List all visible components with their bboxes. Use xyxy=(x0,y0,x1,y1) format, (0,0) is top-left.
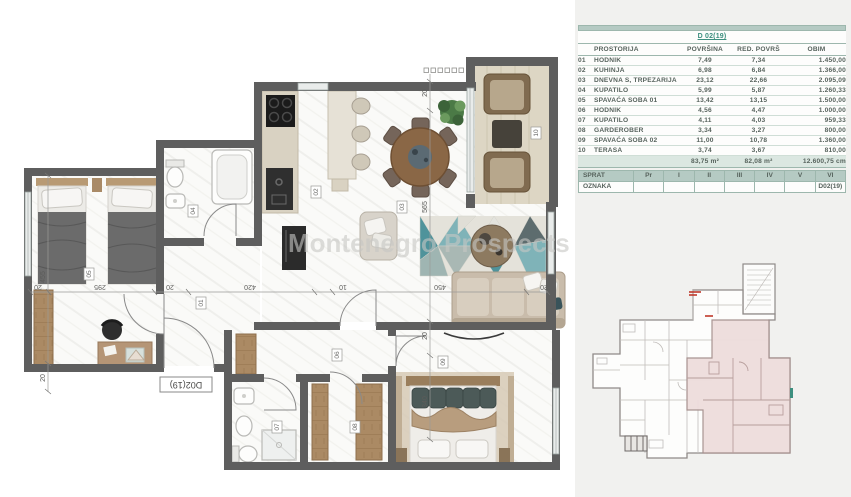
sprat-header-row: SPRAT Pr I II III IV V VI xyxy=(579,171,846,182)
level-pr: Pr xyxy=(634,171,664,182)
nightstand xyxy=(396,448,407,462)
table-row: 02KUHINJA6,986,841.366,00 xyxy=(578,66,846,76)
room-name: SPAVAĆA SOBA 02 xyxy=(594,136,680,146)
svg-text:20: 20 xyxy=(34,283,42,290)
oznaka-cell xyxy=(724,182,754,193)
level-1: I xyxy=(664,171,694,182)
level-2: II xyxy=(694,171,724,182)
room-red: 6,84 xyxy=(730,66,787,76)
sprat-label: SPRAT xyxy=(579,171,634,182)
room-red: 7,34 xyxy=(730,56,787,66)
bar-stool xyxy=(352,154,370,170)
svg-text:455: 455 xyxy=(40,271,47,283)
room-num: 01 xyxy=(578,56,594,66)
armchair xyxy=(360,212,397,260)
room-area: 4,11 xyxy=(680,116,730,126)
room-area: 3,74 xyxy=(680,146,730,156)
room-name: KUPATILO xyxy=(594,116,680,126)
oznaka-cell xyxy=(694,182,724,193)
single-bed-left xyxy=(36,178,88,284)
svg-text:20: 20 xyxy=(540,283,548,290)
room-area: 5,99 xyxy=(680,86,730,96)
level-4: IV xyxy=(755,171,785,182)
room-name: SPAVAĆA SOBA 01 xyxy=(594,96,680,106)
room-obim: 810,00 xyxy=(787,146,846,156)
room-red: 5,87 xyxy=(730,86,787,96)
room-name: HODNIK xyxy=(594,56,680,66)
bar-stool xyxy=(352,98,370,114)
room-obim: 2.095,09 xyxy=(787,76,846,86)
svg-text:450: 450 xyxy=(434,283,446,290)
room-area: 11,00 xyxy=(680,136,730,146)
single-bed-right xyxy=(106,178,158,284)
svg-text:04: 04 xyxy=(190,207,197,215)
col-povrsina: POVRŠINA xyxy=(680,44,730,56)
svg-text:03: 03 xyxy=(399,203,406,211)
coffee-table xyxy=(471,225,513,267)
oznaka-cell xyxy=(634,182,664,193)
wardrobe xyxy=(34,290,53,368)
svg-text:20: 20 xyxy=(166,283,174,290)
level-6: VI xyxy=(815,171,845,182)
table-row: 03DNEVNA S, TRPEZARIJA23,1222,662.095,09 xyxy=(578,76,846,86)
plant xyxy=(438,100,466,126)
svg-text:565: 565 xyxy=(422,201,429,213)
room-obim: 1.500,00 xyxy=(787,96,846,106)
room-red: 4,03 xyxy=(730,116,787,126)
svg-text:08: 08 xyxy=(352,423,359,431)
floorplan-svg: 20 295 20 420 10 450 20 455 20 20 565 20… xyxy=(0,0,575,497)
svg-text:02: 02 xyxy=(313,188,320,196)
svg-text:05: 05 xyxy=(86,270,93,278)
oznaka-cell xyxy=(785,182,815,193)
oznaka-unit: D02(19) xyxy=(815,182,845,193)
room-num: 08 xyxy=(578,126,594,136)
col-red-povrs: RED. POVRŠ xyxy=(730,44,787,56)
svg-text:09: 09 xyxy=(440,358,447,366)
room-name: HODNIK xyxy=(594,106,680,116)
table-row: 06HODNIK4,564,471.000,00 xyxy=(578,106,846,116)
svg-text:01: 01 xyxy=(198,299,205,307)
svg-text:10: 10 xyxy=(339,283,347,290)
room-red: 13,15 xyxy=(730,96,787,106)
terrace-table xyxy=(492,120,522,148)
col-prostorija: PROSTORIJA xyxy=(594,44,680,56)
room-name: GARDEROBER xyxy=(594,126,680,136)
room-area: 7,49 xyxy=(680,56,730,66)
level-5: V xyxy=(785,171,815,182)
table-row: 09SPAVAĆA SOBA 0211,0010,781.360,00 xyxy=(578,136,846,146)
keyplan-svg xyxy=(583,250,813,470)
room-area: 4,56 xyxy=(680,106,730,116)
table-row: 01HODNIK7,497,341.450,00 xyxy=(578,56,846,66)
rug xyxy=(420,216,546,276)
room-num: 03 xyxy=(578,76,594,86)
room-red: 4,47 xyxy=(730,106,787,116)
room-red: 3,27 xyxy=(730,126,787,136)
table-row: 07KUPATILO4,114,03959,33 xyxy=(578,116,846,126)
total-area: 83,75 m² xyxy=(680,156,730,168)
table-row: 10TERASA3,743,67810,00 xyxy=(578,146,846,156)
oznaka-cell xyxy=(755,182,785,193)
room-obim: 1.360,00 xyxy=(787,136,846,146)
svg-text:20: 20 xyxy=(422,89,429,97)
entrance-label: D02(19) xyxy=(160,377,212,392)
table-row: 04KUPATILO5,995,871.260,33 xyxy=(578,86,846,96)
room-name: DNEVNA S, TRPEZARIJA xyxy=(594,76,680,86)
svg-text:340: 340 xyxy=(422,396,429,408)
room-red: 3,67 xyxy=(730,146,787,156)
room-num: 07 xyxy=(578,116,594,126)
teal-marker xyxy=(790,388,793,398)
svg-text:D02(19): D02(19) xyxy=(170,380,203,390)
room-area: 13,42 xyxy=(680,96,730,106)
nightstand xyxy=(92,178,102,192)
totals-row: 83,75 m² 82,08 m² 12.600,75 cm xyxy=(578,156,846,168)
room-area: 23,12 xyxy=(680,76,730,86)
table-row: 05SPAVAĆA SOBA 0113,4213,151.500,00 xyxy=(578,96,846,106)
room-num: 05 xyxy=(578,96,594,106)
total-obim: 12.600,75 cm xyxy=(787,156,846,168)
room-num: 06 xyxy=(578,106,594,116)
sheet-canvas: 20 295 20 420 10 450 20 455 20 20 565 20… xyxy=(0,0,851,497)
room-name: KUPATILO xyxy=(594,86,680,96)
oznaka-cell xyxy=(664,182,694,193)
nightstand xyxy=(499,448,510,462)
room-area: 3,34 xyxy=(680,126,730,136)
room-num: 04 xyxy=(578,86,594,96)
svg-text:10: 10 xyxy=(533,129,540,137)
room-num: 02 xyxy=(578,66,594,76)
bar-stool xyxy=(352,126,370,142)
room-obim: 800,00 xyxy=(787,126,846,136)
room-name: KUHINJA xyxy=(594,66,680,76)
room-name: TERASA xyxy=(594,146,680,156)
room-obim: 1.366,00 xyxy=(787,66,846,76)
unit-title: D 02(19) xyxy=(578,31,846,44)
svg-text:420: 420 xyxy=(244,283,256,290)
total-red: 82,08 m² xyxy=(730,156,787,168)
oznaka-row: OZNAKA D02(19) xyxy=(579,182,846,193)
room-obim: 1.450,00 xyxy=(787,56,846,66)
railing xyxy=(424,68,464,73)
room-obim: 1.260,33 xyxy=(787,86,846,96)
hall-closet xyxy=(236,334,256,374)
col-obim: OBIM xyxy=(787,44,846,56)
room-red: 22,66 xyxy=(730,76,787,86)
oznaka-label: OZNAKA xyxy=(579,182,634,193)
floor-level-table: SPRAT Pr I II III IV V VI OZNAKA D02(19) xyxy=(578,170,846,193)
room-num: 10 xyxy=(578,146,594,156)
room-num: 09 xyxy=(578,136,594,146)
dining-set xyxy=(382,118,458,197)
table-row: 08GARDEROBER3,343,27800,00 xyxy=(578,126,846,136)
svg-text:20: 20 xyxy=(422,332,429,340)
level-3: III xyxy=(724,171,754,182)
svg-text:07: 07 xyxy=(274,423,281,431)
area-table: D 02(19) PROSTORIJA POVRŠINA RED. POVRŠ … xyxy=(578,25,846,168)
room-obim: 1.000,00 xyxy=(787,106,846,116)
room-area: 6,98 xyxy=(680,66,730,76)
room-red: 10,78 xyxy=(730,136,787,146)
room-obim: 959,33 xyxy=(787,116,846,126)
header-row: PROSTORIJA POVRŠINA RED. POVRŠ OBIM xyxy=(578,44,846,56)
svg-text:20: 20 xyxy=(40,374,47,382)
svg-text:06: 06 xyxy=(334,351,341,359)
svg-text:295: 295 xyxy=(94,283,106,290)
